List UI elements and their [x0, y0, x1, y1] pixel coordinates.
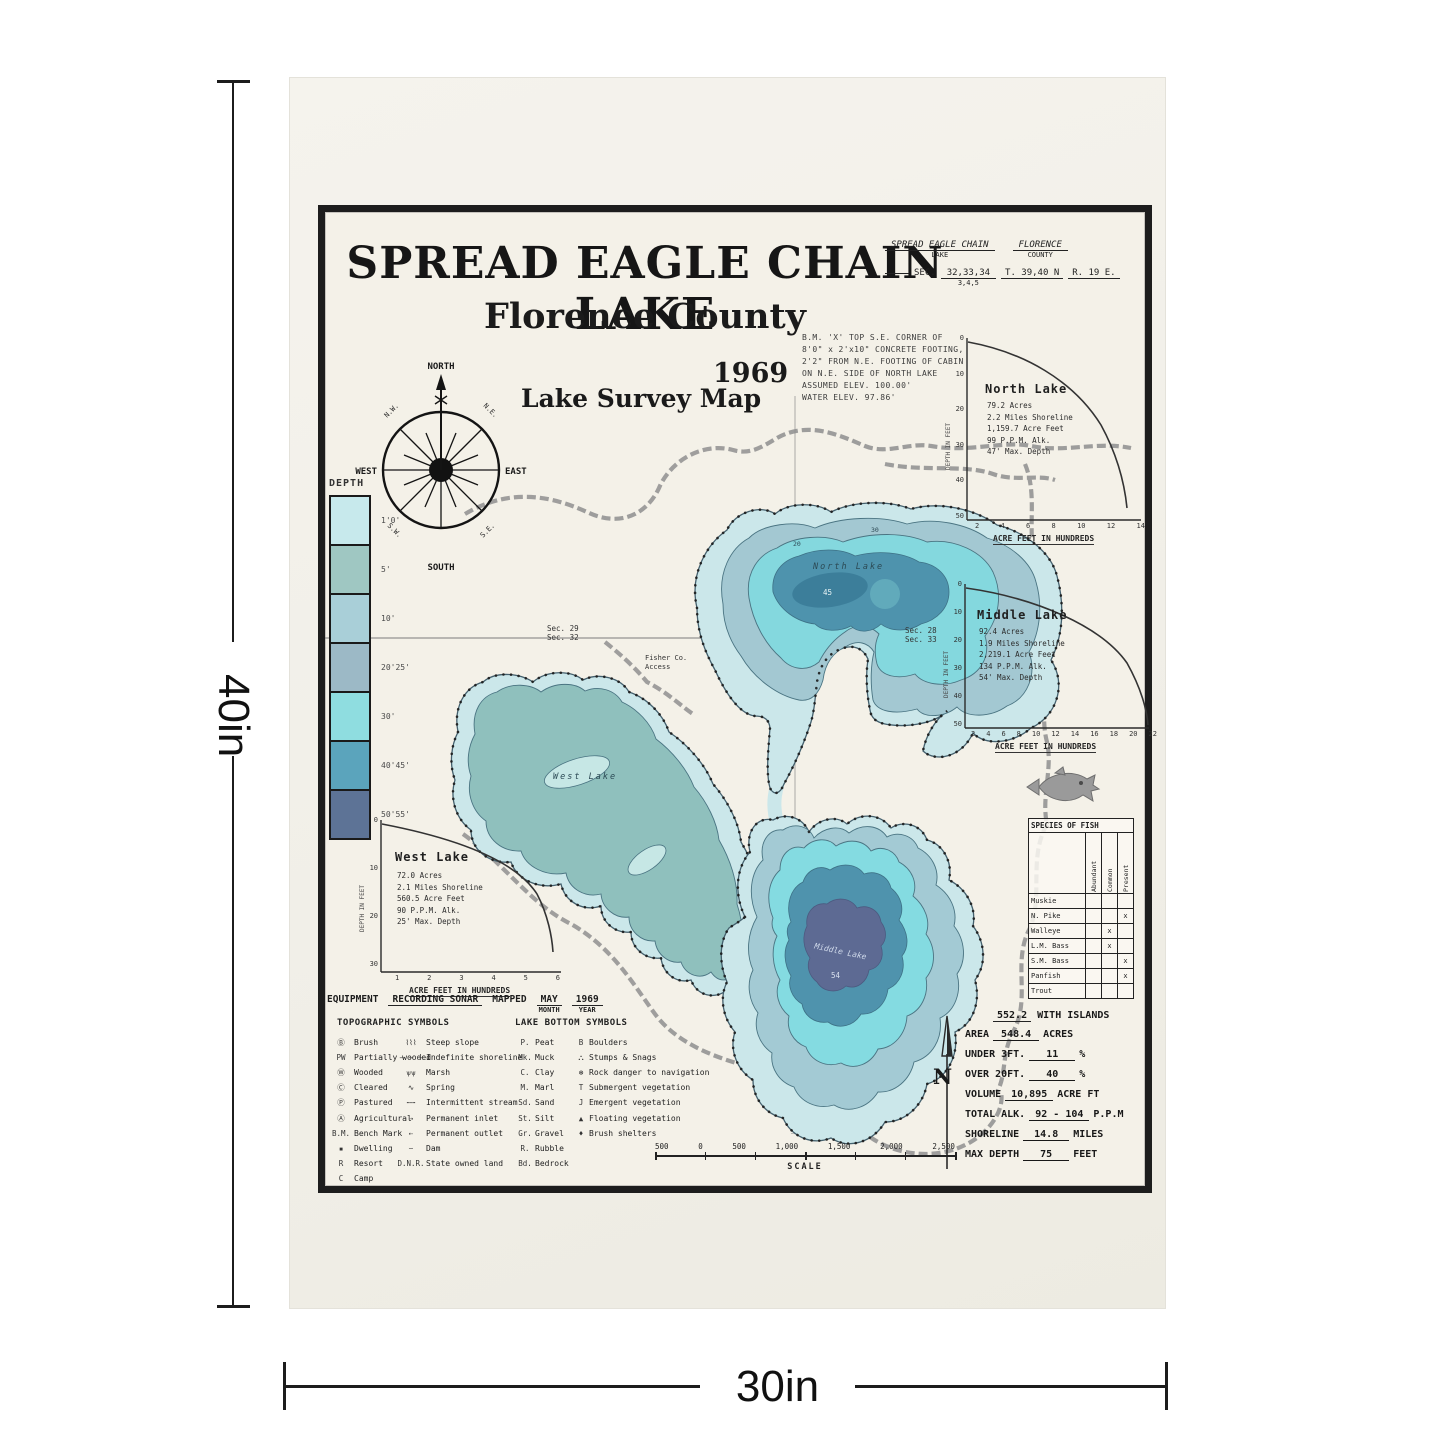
form-county-value: FLORENCE [1013, 240, 1068, 251]
col-abundant: Abundant [1086, 833, 1102, 894]
stat-unit: % [1079, 1069, 1085, 1080]
scale-word: SCALE [655, 1162, 955, 1172]
legend-symbol: Bd. [515, 1159, 535, 1168]
legend-label: Steep slope [426, 1038, 479, 1047]
dim-cap-right [1165, 1362, 1168, 1410]
depth-legend-item: 1'0' [329, 495, 410, 546]
species-table-title: SPECIES OF FISH [1029, 819, 1134, 833]
legend-row: R. Rubble [515, 1141, 569, 1156]
bench-mark-note-line: 8'0" x 2'x10" CONCRETE FOOTING, [802, 344, 964, 356]
mark-common [1102, 909, 1118, 924]
west-graph-xticks: 123456 [395, 974, 560, 982]
bench-mark-note: B.M. 'X' TOP S.E. CORNER OF8'0" x 2'x10"… [802, 332, 964, 404]
stat-row: TOTAL ALK. 92 - 104 P.P.M [965, 1109, 1155, 1121]
compass-west-label: WEST [355, 467, 377, 477]
middle-lake-graph: 01020304050 DEPTH IN FEET Middle Lake 92… [951, 578, 1159, 768]
legend-label: State owned land [426, 1159, 503, 1168]
legend-symbol: J [573, 1098, 589, 1107]
legend-label: Peat [535, 1038, 554, 1047]
legend-row: ▲ Floating vegetation [573, 1110, 709, 1125]
stat-value: 11 [1029, 1049, 1075, 1061]
stat-line: 1,159.7 Acre Feet [987, 423, 1073, 435]
stat-line: 54' Max. Depth [979, 672, 1065, 684]
species-row: L.M. Bass x [1029, 939, 1134, 954]
bottom-symbols-col1: P. Peat Mk. Muck C. Clay [515, 1035, 569, 1171]
ytick: 30 [370, 960, 378, 968]
stat-row: AREA 548.4 ACRES [965, 1029, 1155, 1041]
compass-ne-label: N.E. [482, 402, 500, 420]
mapped-label: MAPPED [492, 994, 526, 1005]
dim-line-lower [232, 756, 234, 1306]
equipment-value: RECORDING SONAR [388, 994, 482, 1006]
dim-cap-bottom [217, 1305, 250, 1308]
species-name: Walleye [1029, 924, 1086, 939]
mark-abundant [1086, 984, 1102, 999]
north-lake-graph: 01020304050 DEPTH IN FEET North Lake 79.… [953, 330, 1149, 562]
xtick: 16 [1090, 730, 1098, 738]
sec-28: Sec. 28 [905, 626, 937, 635]
legend-row: ⇠ Permanent outlet [396, 1126, 522, 1141]
mark-common [1102, 984, 1118, 999]
mark-common [1102, 969, 1118, 984]
legend-symbol: C [328, 1174, 354, 1183]
xtick: 6 [1001, 730, 1005, 738]
depth-mark-45: 45 [823, 588, 832, 597]
legend-row: ⌇⌇⌇ Steep slope [396, 1035, 522, 1050]
legend-label: Brush [354, 1038, 378, 1047]
legend-label: Resort [354, 1159, 383, 1168]
mark-present [1118, 939, 1134, 954]
species-row: Walleye x [1029, 924, 1134, 939]
stat-label: OVER 20FT. [965, 1069, 1025, 1080]
year-value: 1969 [572, 994, 603, 1006]
stat-line: 79.2 Acres [987, 400, 1073, 412]
legend-symbol: ⋯⋯ [396, 1098, 426, 1107]
legend-label: Emergent vegetation [589, 1098, 681, 1107]
stat-row: VOLUME 10,895 ACRE FT [965, 1089, 1155, 1101]
legend-row: – – – Indefinite shoreline [396, 1050, 522, 1065]
legend-label: Sand [535, 1098, 554, 1107]
scale-numbers: 50005001,0001,5002,0002,500 [655, 1142, 955, 1151]
bench-mark-note-line: ASSUMED ELEV. 100.00' [802, 380, 964, 392]
mark-present: x [1118, 909, 1134, 924]
ytick: 30 [954, 664, 962, 672]
depth-swatch-label: 20'25' [381, 663, 410, 672]
stat-line: 72.0 Acres [397, 870, 483, 882]
legend-row: ⋯⋯ Intermittent stream [396, 1095, 522, 1110]
mark-common: x [1102, 924, 1118, 939]
mapped-year: 1969 YEAR [572, 994, 603, 1014]
legend-symbol: R. [515, 1144, 535, 1153]
depth-mark-30: 30 [871, 526, 879, 534]
depth-legend-item: 40'45' [329, 740, 410, 791]
legend-label: Rock danger to navigation [589, 1068, 709, 1077]
west-graph-stats: 72.0 Acres2.1 Miles Shoreline560.5 Acre … [397, 870, 483, 928]
middle-graph-ylabel: DEPTH IN FEET [943, 651, 950, 698]
west-graph-ylabel: DEPTH IN FEET [359, 885, 366, 932]
mark-abundant [1086, 894, 1102, 909]
stat-row: OVER 20FT. 40 % [965, 1069, 1155, 1081]
species-name: N. Pike [1029, 909, 1086, 924]
depth-swatch [329, 544, 371, 595]
depth-legend-item: 30' [329, 691, 410, 742]
stat-line: 1.9 Miles Shoreline [979, 638, 1065, 650]
form-sec: 32,33,34 3,4,5 [941, 268, 996, 287]
depth-swatch [329, 740, 371, 791]
legend-symbol: C. [515, 1068, 535, 1077]
equipment-line: EQUIPMENT RECORDING SONAR MAPPED MAY MON… [327, 994, 603, 1014]
month-label: MONTH [539, 1006, 560, 1014]
legend-label: Silt [535, 1114, 554, 1123]
ytick: 50 [956, 512, 964, 520]
topographic-symbols-title: TOPOGRAPHIC SYMBOLS [337, 1018, 449, 1028]
legend-symbol: R [328, 1159, 354, 1168]
compass-east-label: EAST [505, 467, 527, 477]
legend-row: ⊛ Rock danger to navigation [573, 1065, 709, 1080]
form-lake: SPREAD EAGLE CHAIN LAKE [885, 240, 995, 259]
legend-label: Clay [535, 1068, 554, 1077]
legend-row: C. Clay [515, 1065, 569, 1080]
depth-swatch-label: 40'45' [381, 761, 410, 770]
depth-swatch-label: 1'0' [381, 516, 400, 525]
stat-label: SHORELINE [965, 1129, 1019, 1140]
xtick: 20 [1129, 730, 1137, 738]
form-township: T. 39,40 N [1001, 268, 1063, 279]
legend-row: P. Peat [515, 1035, 569, 1050]
legend-symbol: M. [515, 1083, 535, 1092]
stat-unit: % [1079, 1049, 1085, 1060]
legend-label: Spring [426, 1083, 455, 1092]
mark-common [1102, 954, 1118, 969]
legend-symbol: ⊛ [573, 1068, 589, 1077]
stat-value: 92 - 104 [1029, 1109, 1089, 1121]
xtick: 8 [1017, 730, 1021, 738]
scale-line [655, 1152, 955, 1160]
access-label: Fisher Co. Access [645, 654, 687, 672]
xtick: 12 [1051, 730, 1059, 738]
stat-row: SHORELINE 14.8 MILES [965, 1129, 1155, 1141]
legend-symbol: Ⓑ [328, 1037, 354, 1048]
xtick: 3 [459, 974, 463, 982]
lake-statistics: 552.2 WITH ISLANDS AREA 548.4 ACRES [965, 1010, 1155, 1161]
legend-label: Muck [535, 1053, 554, 1062]
species-name: S.M. Bass [1029, 954, 1086, 969]
stat-line: 99 P.P.M. Alk. [987, 435, 1073, 447]
stat-label: AREA [965, 1029, 989, 1040]
height-label: 40in [208, 674, 258, 720]
legend-symbol: ▪ [328, 1144, 354, 1153]
legend-label: Boulders [589, 1038, 628, 1047]
width-label: 30in [700, 1362, 855, 1412]
mark-common [1102, 894, 1118, 909]
equipment-label: EQUIPMENT [327, 994, 378, 1005]
compass-south-label: SOUTH [427, 563, 454, 573]
form-county: FLORENCE COUNTY [1013, 240, 1068, 259]
stat-line: 25' Max. Depth [397, 916, 483, 928]
legend-row: ⌣ Dam [396, 1141, 522, 1156]
legend-label: Dwelling [354, 1144, 393, 1153]
depth-legend-item: 10' [329, 593, 410, 644]
legend-symbol: ♦ [573, 1129, 589, 1138]
species-of-fish-table: SPECIES OF FISH Abundant Common Present [1028, 818, 1134, 999]
legend-row: ⛬ Stumps & Snags [573, 1050, 709, 1065]
compass-north-label: NORTH [427, 362, 454, 372]
legend-symbol: Ⓒ [328, 1082, 354, 1093]
stat-label: TOTAL ALK. [965, 1109, 1025, 1120]
legend-row: ∿ Spring [396, 1080, 522, 1095]
xtick: 14 [1071, 730, 1079, 738]
xtick: 4 [1001, 522, 1005, 530]
form-lake-label: LAKE [931, 251, 948, 259]
legend-label: Permanent outlet [426, 1129, 503, 1138]
stat-label: UNDER 3FT. [965, 1049, 1025, 1060]
legend-row: ♦ Brush shelters [573, 1126, 709, 1141]
depth-mark-20: 20 [793, 540, 801, 548]
legend-label: Dam [426, 1144, 440, 1153]
middle-graph-title: Middle Lake [977, 608, 1067, 622]
ytick: 30 [956, 441, 964, 449]
scale-number: 500 [732, 1142, 746, 1151]
mark-present: x [1118, 969, 1134, 984]
legend-label: Wooded [354, 1068, 383, 1077]
legend-label: Stumps & Snags [589, 1053, 656, 1062]
stat-row: UNDER 3FT. 11 % [965, 1049, 1155, 1061]
legend-symbol: Gr. [515, 1129, 535, 1138]
legend-row: St. Silt [515, 1110, 569, 1125]
depth-swatch-label: 30' [381, 712, 395, 721]
bench-mark-note-line: 2'2" FROM N.E. FOOTING OF CABIN [802, 356, 964, 368]
depth-legend-item: 5' [329, 544, 410, 595]
stat-line: 134 P.P.M. Alk. [979, 661, 1065, 673]
north-graph-xlabel: ACRE FEET IN HUNDREDS [993, 534, 1094, 545]
middle-graph-xticks: 246810121416182022 [971, 730, 1157, 738]
ytick: 10 [954, 608, 962, 616]
map-type-label: Lake Survey Map [521, 384, 761, 413]
stat-unit: ACRE FT [1057, 1089, 1099, 1100]
fish-icon [1025, 765, 1107, 809]
mapped-month: MAY MONTH [537, 994, 562, 1014]
legend-row: J Emergent vegetation [573, 1095, 709, 1110]
stats-rows: AREA 548.4 ACRES UNDER 3FT. 11 % [965, 1029, 1155, 1161]
legend-symbol: ∿ [396, 1083, 426, 1092]
north-graph-yticks: 01020304050 [951, 334, 964, 520]
depth-legend-entries: 1'0' 5' 10' [329, 495, 410, 840]
stat-line: 2.2 Miles Shoreline [987, 412, 1073, 424]
month-value: MAY [537, 994, 562, 1006]
legend-row: ⇢ Permanent inlet [396, 1110, 522, 1125]
xtick: 12 [1107, 522, 1115, 530]
ytick: 10 [370, 864, 378, 872]
mark-abundant [1086, 924, 1102, 939]
form-sec-label: SEC. [914, 268, 936, 278]
depth-legend: DEPTH 1'0' 5' [329, 478, 410, 838]
stat-value: 40 [1029, 1069, 1075, 1081]
legend-label: Bench Mark [354, 1129, 402, 1138]
compass-nw-label: N.W. [383, 402, 401, 420]
species-name: Trout [1029, 984, 1086, 999]
legend-label: Gravel [535, 1129, 564, 1138]
north-graph-ylabel: DEPTH IN FEET [945, 423, 952, 470]
map-form: SPREAD EAGLE CHAIN LAKE FLORENCE COUNTY … [885, 240, 1147, 287]
mark-present [1118, 894, 1134, 909]
depth-swatch [329, 495, 371, 546]
section-label-left: Sec. 29 Sec. 32 [547, 624, 579, 642]
stat-line: 560.5 Acre Feet [397, 893, 483, 905]
legend-label: Bedrock [535, 1159, 569, 1168]
legend-row: Bd. Bedrock [515, 1156, 569, 1171]
scale-number: 1,000 [776, 1142, 799, 1151]
west-graph-yticks: 0102030 [365, 816, 378, 968]
legend-symbol: D.N.R. [396, 1159, 426, 1168]
depth-mark-54: 54 [831, 971, 841, 980]
legend-symbol: Mk. [515, 1053, 535, 1062]
xtick: 5 [524, 974, 528, 982]
legend-label: Cleared [354, 1083, 388, 1092]
legend-symbol: T [573, 1083, 589, 1092]
section-label-right: Sec. 28 Sec. 33 [905, 626, 937, 644]
xtick: 4 [986, 730, 990, 738]
legend-symbol: B [573, 1038, 589, 1047]
islands-label: WITH ISLANDS [1037, 1010, 1109, 1021]
form-county-label: COUNTY [1028, 251, 1053, 259]
bench-mark-note-line: B.M. 'X' TOP S.E. CORNER OF [802, 332, 964, 344]
poster: 20 30 45 54 No [290, 78, 1165, 1308]
species-row: N. Pike x [1029, 909, 1134, 924]
scale-number: 0 [698, 1142, 703, 1151]
bottom-symbols-col2: B Boulders ⛬ Stumps & Snags ⊛ Rock dange… [573, 1035, 709, 1141]
legend-symbol: P. [515, 1038, 535, 1047]
legend-label: Indefinite shoreline [426, 1053, 522, 1062]
form-sec-value2: 3,4,5 [958, 279, 979, 287]
stat-row: MAX DEPTH 75 FEET [965, 1149, 1155, 1161]
xtick: 8 [1052, 522, 1056, 530]
stat-line: 92.4 Acres [979, 626, 1065, 638]
legend-symbol: B.M. [328, 1129, 354, 1138]
legend-label: Submergent vegetation [589, 1083, 690, 1092]
legend-row: M. Marl [515, 1080, 569, 1095]
scale-number: 1,500 [828, 1142, 851, 1151]
sec-33: Sec. 33 [905, 635, 937, 644]
legend-symbol: – – – [396, 1053, 426, 1062]
stat-line: 2,219.1 Acre Feet [979, 649, 1065, 661]
scale-number: 2,000 [880, 1142, 903, 1151]
west-lake-label: West Lake [553, 772, 617, 782]
dim-line-left [283, 1385, 700, 1388]
legend-symbol: ⛬ [573, 1053, 589, 1063]
legend-symbol: PW [328, 1053, 354, 1062]
xtick: 2 [427, 974, 431, 982]
xtick: 6 [1026, 522, 1030, 530]
species-table-columns: Abundant Common Present [1029, 833, 1134, 894]
scale-number: 2,500 [932, 1142, 955, 1151]
year-label: YEAR [579, 1006, 596, 1014]
stat-label: VOLUME [965, 1089, 1001, 1100]
legend-row: D.N.R. State owned land [396, 1156, 522, 1171]
ytick: 0 [960, 334, 964, 342]
legend-symbol: ⇢ [396, 1114, 426, 1123]
ytick: 10 [956, 370, 964, 378]
legend-symbol: Ⓐ [328, 1113, 354, 1124]
stat-line: 2.1 Miles Shoreline [397, 882, 483, 894]
scale-bar: 50005001,0001,5002,0002,500 SCALE [655, 1142, 955, 1172]
west-graph-title: West Lake [395, 850, 469, 864]
ytick: 20 [956, 405, 964, 413]
form-sec-value: 32,33,34 [941, 268, 996, 279]
bench-mark-note-line: WATER ELEV. 97.86' [802, 392, 964, 404]
ytick: 50 [954, 720, 962, 728]
stat-value: 75 [1023, 1149, 1069, 1161]
islands-value: 552.2 [993, 1010, 1031, 1022]
depth-swatch-label: 10' [381, 614, 395, 623]
middle-graph-stats: 92.4 Acres1.9 Miles Shoreline2,219.1 Acr… [979, 626, 1065, 684]
legend-label: Floating vegetation [589, 1114, 681, 1123]
dim-line-right [855, 1385, 1168, 1388]
access-line1: Fisher Co. [645, 654, 687, 663]
legend-symbol: ▲ [573, 1114, 589, 1123]
north-lake-label: North Lake [813, 562, 884, 572]
species-name: L.M. Bass [1029, 939, 1086, 954]
species-row: Muskie [1029, 894, 1134, 909]
depth-swatch-label: 5' [381, 565, 391, 574]
ytick: 20 [954, 636, 962, 644]
species-name: Muskie [1029, 894, 1086, 909]
west-lake-graph: 0102030 DEPTH IN FEET West Lake 72.0 Acr… [365, 812, 570, 1007]
depth-swatch [329, 691, 371, 742]
legend-label: Permanent inlet [426, 1114, 498, 1123]
col-present: Present [1118, 833, 1134, 894]
legend-symbol: St. [515, 1114, 535, 1123]
legend-label: Pastured [354, 1098, 393, 1107]
form-range: R. 19 E. [1068, 268, 1119, 279]
mark-abundant [1086, 939, 1102, 954]
scale-number: 500 [655, 1142, 669, 1151]
legend-symbol: Sd. [515, 1098, 535, 1107]
mark-abundant [1086, 969, 1102, 984]
mark-common: x [1102, 939, 1118, 954]
map-border-frame: 20 30 45 54 No [318, 205, 1152, 1193]
legend-row: B Boulders [573, 1035, 709, 1050]
legend-label: Rubble [535, 1144, 564, 1153]
mark-present [1118, 984, 1134, 999]
topo-symbols-col2: ⌇⌇⌇ Steep slope – – – Indefinite shoreli… [396, 1035, 522, 1171]
species-row: Panfish x [1029, 969, 1134, 984]
legend-label: Camp [354, 1174, 373, 1183]
mark-present [1118, 924, 1134, 939]
legend-label: Brush shelters [589, 1129, 656, 1138]
stat-value: 548.4 [993, 1029, 1039, 1041]
legend-row: Sd. Sand [515, 1095, 569, 1110]
ytick: 0 [374, 816, 378, 824]
depth-legend-item: 20'25' [329, 642, 410, 693]
stat-line: 47' Max. Depth [987, 446, 1073, 458]
stat-line: 90 P.P.M. Alk. [397, 905, 483, 917]
mark-present: x [1118, 954, 1134, 969]
ytick: 20 [370, 912, 378, 920]
xtick: 10 [1077, 522, 1085, 530]
legend-symbol: ⌇⌇⌇ [396, 1038, 426, 1047]
legend-label: Intermittent stream [426, 1098, 518, 1107]
north-graph-xticks: 2468101214 [975, 522, 1145, 530]
sec-32: Sec. 32 [547, 633, 579, 642]
legend-label: Marsh [426, 1068, 450, 1077]
product-image: 40in 30in [0, 0, 1445, 1445]
xtick: 22 [1149, 730, 1157, 738]
stat-unit: MILES [1073, 1129, 1103, 1140]
xtick: 2 [975, 522, 979, 530]
middle-graph-xlabel: ACRE FEET IN HUNDREDS [995, 742, 1096, 753]
compass-se-label: S.E. [479, 522, 497, 540]
middle-graph-yticks: 01020304050 [949, 580, 962, 728]
